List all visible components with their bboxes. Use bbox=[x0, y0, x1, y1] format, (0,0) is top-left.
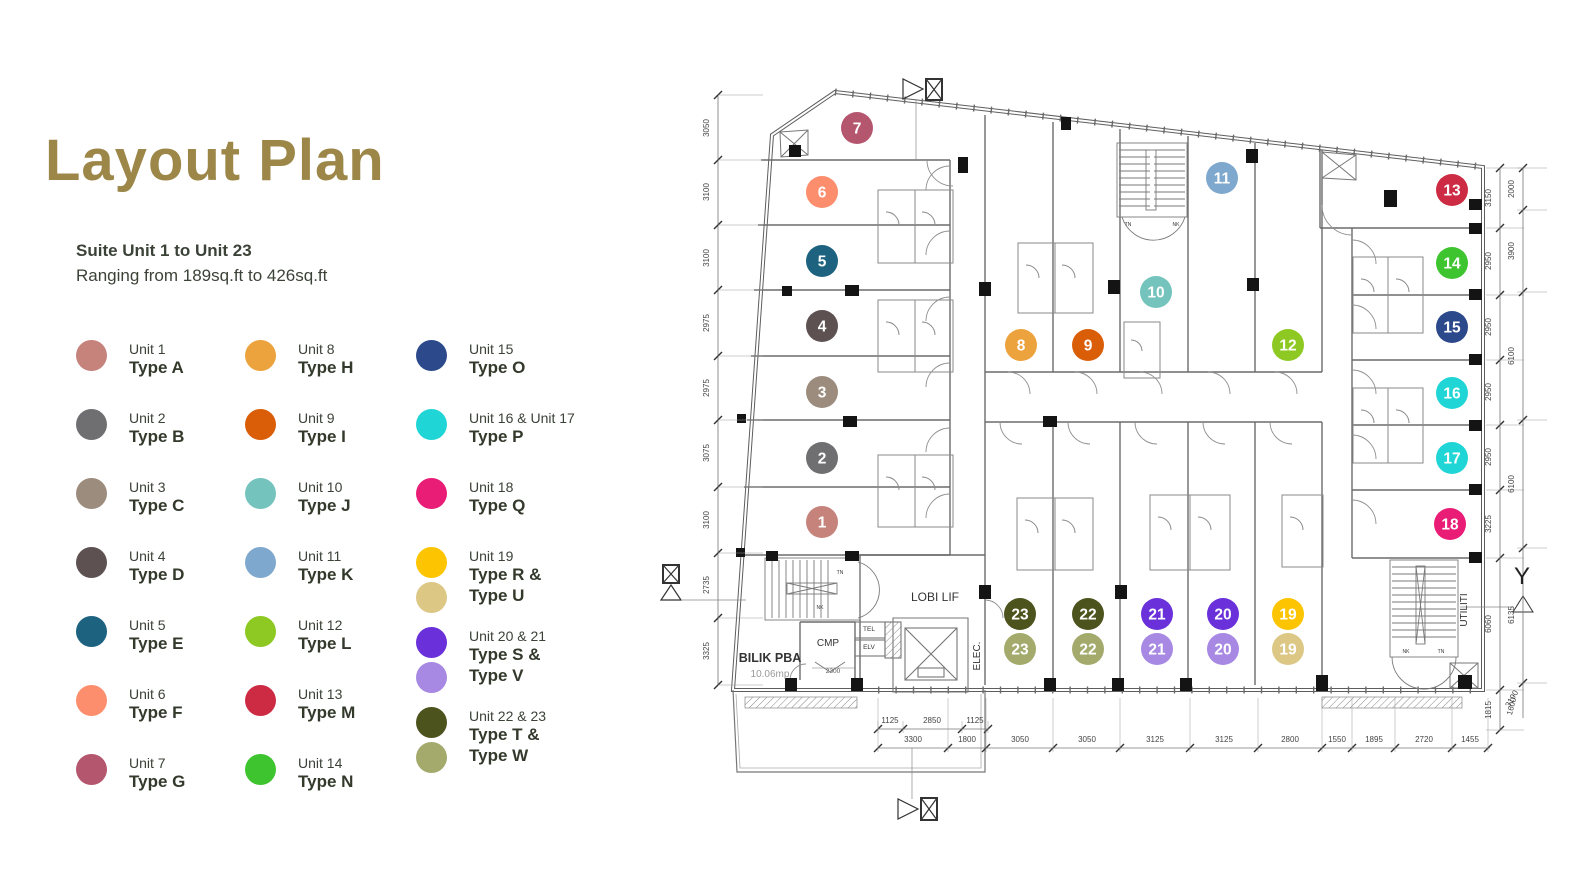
unit-marker-number: 9 bbox=[1084, 338, 1093, 355]
unit-marker-number: 22 bbox=[1079, 642, 1096, 659]
plan-label-utiliti: UTILITI bbox=[1459, 593, 1470, 626]
dim-label: 6100 bbox=[1507, 475, 1516, 493]
unit-marker-21: 21 bbox=[1141, 633, 1173, 665]
unit-marker-5: 5 bbox=[806, 245, 838, 277]
elevator-shaft bbox=[812, 618, 968, 692]
unit-marker-number: 3 bbox=[818, 385, 827, 402]
dimension-group: 31502950295029502950322560601815 bbox=[1484, 164, 1524, 734]
section-marker-top bbox=[903, 79, 942, 160]
plan-walls bbox=[733, 92, 1483, 772]
unit-marker-19: 19 bbox=[1272, 633, 1304, 665]
plan-label-10-06mp: 10.06mp bbox=[751, 669, 790, 680]
dim-label: 3075 bbox=[702, 444, 711, 462]
dim-label: 3900 bbox=[1507, 242, 1516, 260]
unit-marker-18: 18 bbox=[1434, 508, 1466, 540]
dim-label: 1815 bbox=[1484, 701, 1493, 719]
unit-marker-number: 13 bbox=[1443, 183, 1461, 200]
unit-marker-number: 14 bbox=[1443, 256, 1461, 273]
unit-marker-11: 11 bbox=[1206, 162, 1238, 194]
dim-label: 1125 bbox=[881, 716, 899, 725]
dim-label: 3100 bbox=[702, 183, 711, 201]
plan-label-nk: NK bbox=[1173, 222, 1181, 228]
unit-marker-number: 8 bbox=[1017, 338, 1026, 355]
unit-marker-23: 23 bbox=[1004, 598, 1036, 630]
dim-label: 6100 bbox=[1507, 347, 1516, 365]
dim-label: 3100 bbox=[702, 511, 711, 529]
dim-label: 1800 bbox=[958, 735, 976, 744]
plan-label-tel: TEL bbox=[863, 626, 875, 633]
unit-marker-20: 20 bbox=[1207, 633, 1239, 665]
unit-marker-number: 20 bbox=[1214, 642, 1231, 659]
dim-label: 3150 bbox=[1484, 189, 1493, 207]
unit-marker-number: 23 bbox=[1011, 642, 1029, 659]
dim-label: 2800 bbox=[1281, 735, 1299, 744]
dim-label: 1550 bbox=[1328, 735, 1346, 744]
stair-bottom-right bbox=[1390, 560, 1458, 689]
unit-marker-number: 10 bbox=[1147, 285, 1164, 302]
dim-label: 1895 bbox=[1365, 735, 1383, 744]
dim-label: 2950 bbox=[1484, 448, 1493, 466]
unit-marker-number: 11 bbox=[1214, 171, 1231, 188]
dim-label: 3125 bbox=[1215, 735, 1233, 744]
dim-label: 3050 bbox=[1011, 735, 1029, 744]
dimension-group: 2000390061006100613531901600 bbox=[1503, 164, 1547, 718]
dim-label: 2000 bbox=[1507, 180, 1516, 198]
plan-label-tn: TN bbox=[1438, 649, 1445, 655]
unit-marker-number: 19 bbox=[1279, 607, 1297, 624]
unit-marker-number: 17 bbox=[1443, 451, 1460, 468]
grid-marker-y bbox=[1460, 596, 1533, 612]
dim-label: 3300 bbox=[904, 735, 922, 744]
unit-marker-4: 4 bbox=[806, 310, 838, 342]
unit-marker-number: 22 bbox=[1079, 607, 1096, 624]
plan-label-tn: TN bbox=[1125, 222, 1132, 228]
plan-label-nk: NK bbox=[1403, 649, 1411, 655]
unit-marker-number: 19 bbox=[1279, 642, 1297, 659]
unit-marker-number: 21 bbox=[1148, 607, 1166, 624]
dim-label: 1455 bbox=[1461, 735, 1479, 744]
dim-label: 2735 bbox=[702, 576, 711, 594]
dim-label: 2950 bbox=[1484, 383, 1493, 401]
plan-partitions bbox=[740, 115, 1481, 690]
floor-plan: 3050310031002975297530753100273533253150… bbox=[0, 0, 1580, 889]
unit-marker-6: 6 bbox=[806, 176, 838, 208]
dim-label: 3050 bbox=[1078, 735, 1096, 744]
unit-marker-number: 23 bbox=[1011, 607, 1029, 624]
dim-label: 2975 bbox=[702, 314, 711, 332]
unit-marker-14: 14 bbox=[1436, 247, 1468, 279]
dim-label: 1125 bbox=[966, 716, 984, 725]
unit-marker-number: 6 bbox=[818, 185, 827, 202]
section-marker-bottom bbox=[898, 748, 937, 820]
unit-marker-number: 5 bbox=[818, 254, 827, 271]
dim-label: 2975 bbox=[702, 379, 711, 397]
unit-marker-22: 22 bbox=[1072, 633, 1104, 665]
plan-label-elv: ELV bbox=[863, 644, 875, 651]
unit-marker-23: 23 bbox=[1004, 633, 1036, 665]
unit-marker-15: 15 bbox=[1436, 311, 1468, 343]
unit-marker-number: 4 bbox=[818, 319, 827, 336]
dim-label: 2950 bbox=[1484, 252, 1493, 270]
unit-marker-21: 21 bbox=[1141, 598, 1173, 630]
dim-label: 3125 bbox=[1146, 735, 1164, 744]
unit-marker-number: 1 bbox=[818, 515, 827, 532]
unit-marker-number: 18 bbox=[1441, 517, 1459, 534]
plan-label-elec-: ELEC. bbox=[972, 642, 983, 671]
unit-marker-number: 16 bbox=[1443, 386, 1461, 403]
plan-label-nk: NK bbox=[817, 605, 825, 611]
unit-marker-2: 2 bbox=[806, 442, 838, 474]
plan-label-tn: TN bbox=[837, 570, 844, 576]
unit-marker-9: 9 bbox=[1072, 329, 1104, 361]
structural-columns bbox=[736, 117, 1482, 691]
dim-label: 6060 bbox=[1484, 615, 1493, 633]
plan-label-cmp: CMP bbox=[817, 638, 840, 649]
unit-marker-13: 13 bbox=[1436, 174, 1468, 206]
unit-marker-17: 17 bbox=[1436, 442, 1468, 474]
dimension-group: 112528501125 bbox=[874, 716, 992, 733]
unit-marker-number: 7 bbox=[853, 121, 862, 138]
dim-label: 2720 bbox=[1415, 735, 1433, 744]
dim-label: 3325 bbox=[702, 642, 711, 660]
dim-label: 6135 bbox=[1507, 606, 1516, 624]
unit-marker-20: 20 bbox=[1207, 598, 1239, 630]
unit-marker-10: 10 bbox=[1140, 276, 1172, 308]
dim-label: 2950 bbox=[1484, 318, 1493, 336]
unit-marker-number: 20 bbox=[1214, 607, 1231, 624]
plan-label-2300: 2300 bbox=[826, 668, 841, 675]
unit-marker-number: 2 bbox=[818, 451, 827, 468]
unit-marker-3: 3 bbox=[806, 376, 838, 408]
unit-marker-number: 15 bbox=[1443, 320, 1461, 337]
shaft-braces bbox=[780, 130, 1478, 688]
plan-label-lobi-lif: LOBI LIF bbox=[911, 590, 959, 604]
unit-marker-number: 12 bbox=[1279, 338, 1296, 355]
unit-marker-number: 21 bbox=[1148, 642, 1166, 659]
dim-label: 3050 bbox=[702, 119, 711, 137]
unit-marker-8: 8 bbox=[1005, 329, 1037, 361]
dim-label: 2850 bbox=[923, 716, 941, 725]
unit-marker-19: 19 bbox=[1272, 598, 1304, 630]
plan-label-y: Y bbox=[1514, 563, 1530, 590]
unit-marker-22: 22 bbox=[1072, 598, 1104, 630]
dim-label: 3100 bbox=[702, 249, 711, 267]
unit-marker-16: 16 bbox=[1436, 377, 1468, 409]
plan-label-bilik-pba: BILIK PBA bbox=[739, 651, 802, 665]
unit-marker-7: 7 bbox=[841, 112, 873, 144]
bathroom-pods bbox=[878, 190, 1423, 570]
dim-label: 3225 bbox=[1484, 515, 1493, 533]
unit-marker-12: 12 bbox=[1272, 329, 1304, 361]
unit-marker-1: 1 bbox=[806, 506, 838, 538]
